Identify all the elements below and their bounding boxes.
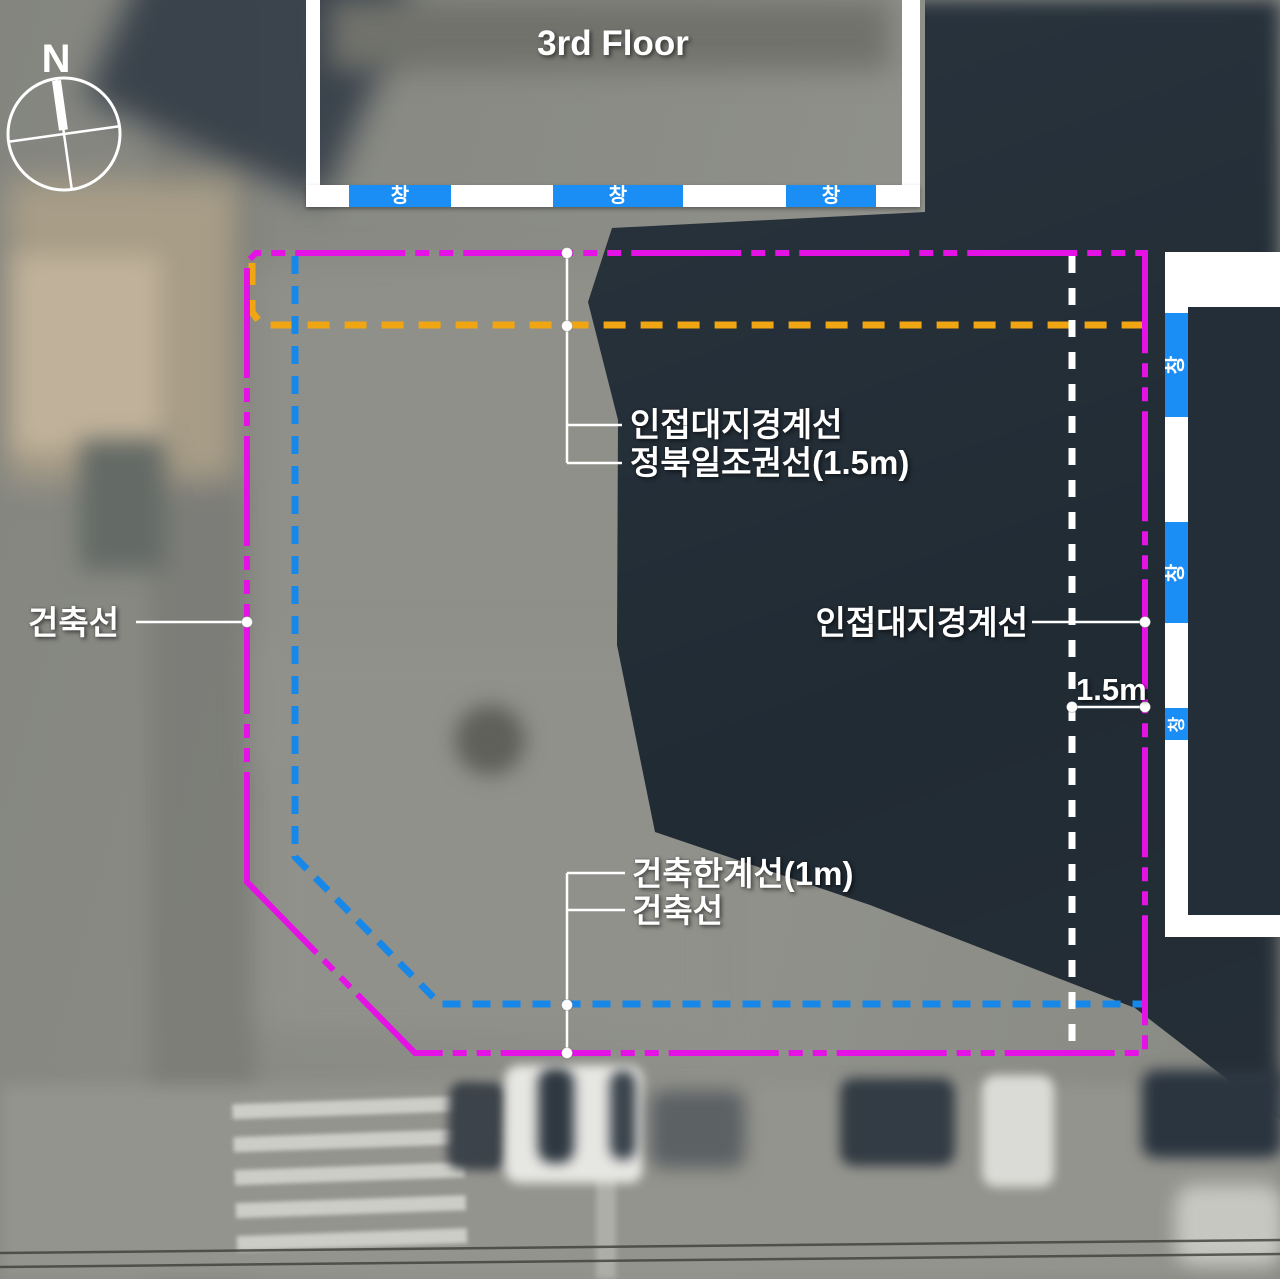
marker-dot — [562, 248, 573, 259]
label-north-sunlight-line: 정북일조권선(1.5m) — [630, 444, 909, 482]
marker-dot — [562, 1000, 573, 1011]
label-adjacent-boundary-right: 인접대지경계선 — [790, 604, 1028, 642]
site-plan-overlay: N — [0, 0, 1280, 1279]
marker-dot — [1140, 617, 1151, 628]
compass: N — [1, 37, 127, 197]
power-line — [0, 1240, 1280, 1253]
label-adjacent-boundary-top: 인접대지경계선 — [630, 406, 843, 444]
marker-dot — [562, 321, 573, 332]
leader-top-group — [567, 253, 622, 463]
label-building-line-left: 건축선 — [28, 604, 119, 642]
leader-lines — [136, 253, 1145, 1053]
leader-bottom-group — [567, 873, 625, 1053]
marker-dot — [562, 1048, 573, 1059]
compass-north-label: N — [42, 37, 71, 81]
site-boundary-line — [247, 253, 1145, 1053]
marker-dot — [242, 617, 253, 628]
site-plan-screenshot: 창 창 창 3rd Floor 창 창 창 — [0, 0, 1280, 1279]
sunlight-line — [252, 263, 1143, 325]
label-building-limit-line: 건축한계선(1m) — [632, 855, 853, 893]
power-line — [0, 1254, 1280, 1267]
label-offset-1-5m: 1.5m — [1076, 672, 1147, 708]
marker-dots — [242, 248, 1151, 1059]
compass-cross — [1, 71, 127, 197]
compass-north-needle — [52, 80, 68, 131]
label-building-line-bottom: 건축선 — [632, 892, 723, 930]
